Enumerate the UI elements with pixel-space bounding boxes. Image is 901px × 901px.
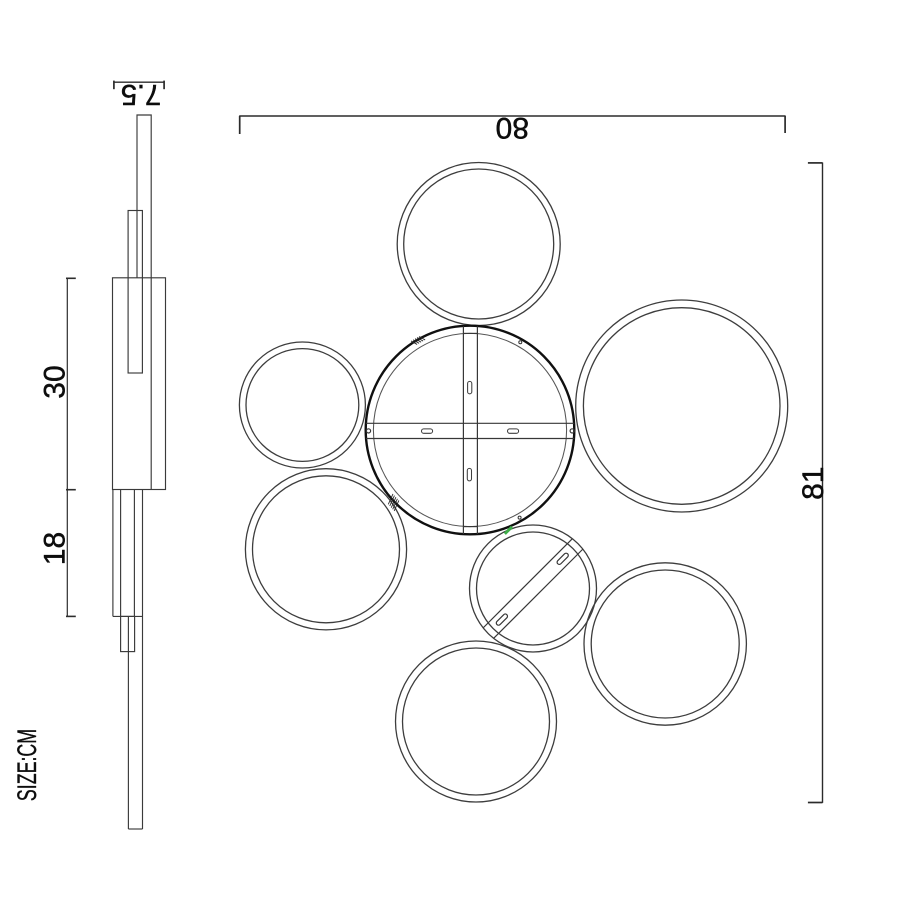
svg-text:30: 30 <box>39 365 72 398</box>
svg-text:18: 18 <box>39 532 72 565</box>
svg-text:80: 80 <box>496 111 529 144</box>
svg-text:7.5: 7.5 <box>121 78 161 110</box>
svg-text:SIZE:CM: SIZE:CM <box>11 729 42 801</box>
svg-text:81: 81 <box>797 467 830 500</box>
